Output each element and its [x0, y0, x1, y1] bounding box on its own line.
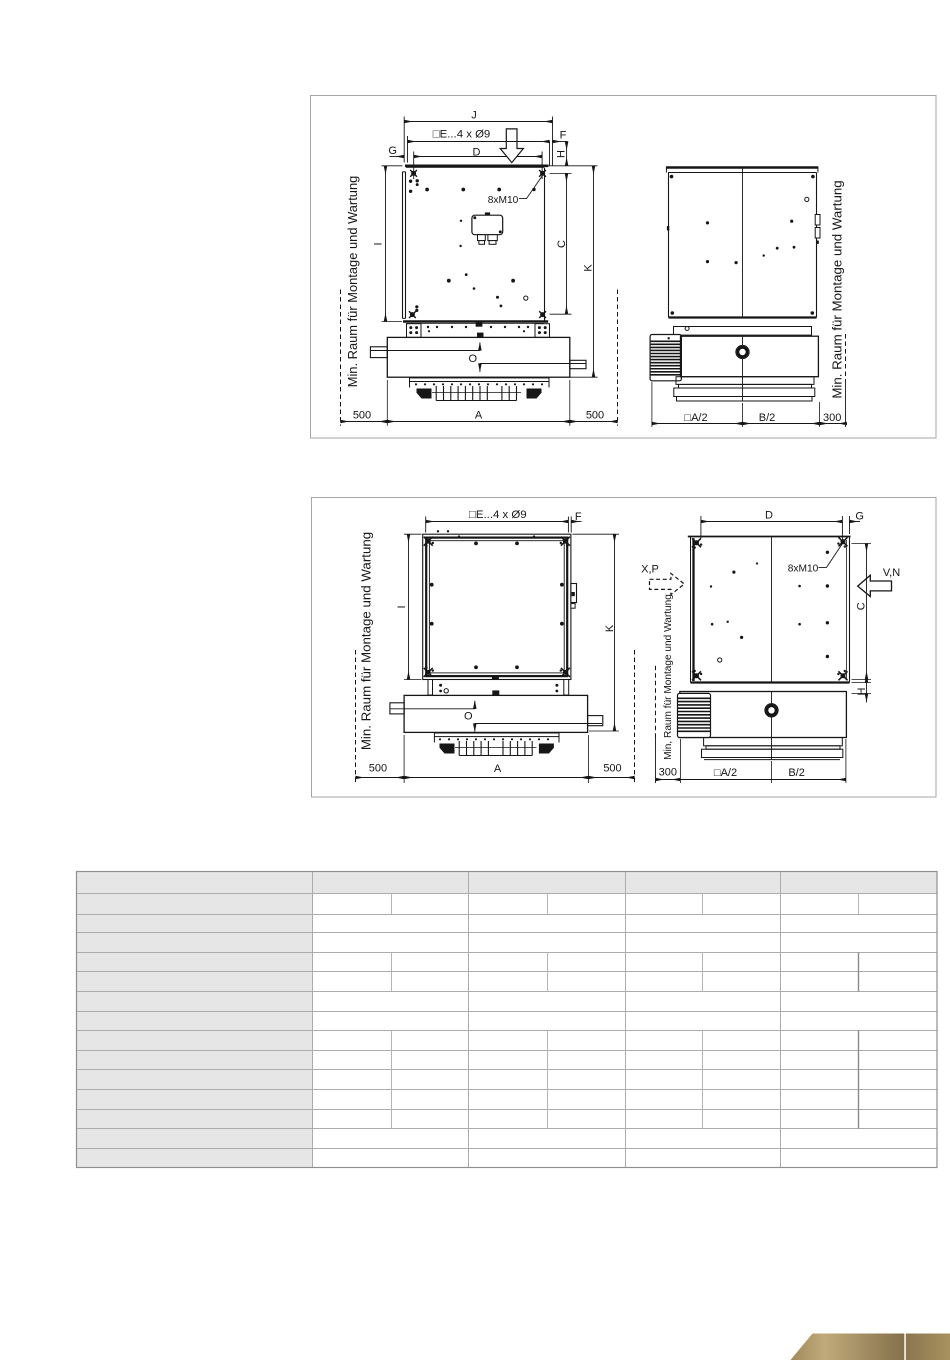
svg-text:300: 300	[659, 767, 677, 779]
svg-text:V,N: V,N	[883, 567, 900, 579]
svg-text:500: 500	[353, 409, 371, 421]
svg-text:F: F	[575, 511, 582, 523]
svg-text:H: H	[556, 150, 568, 158]
svg-text:G: G	[855, 511, 864, 523]
svg-text:□E...4 x Ø9: □E...4 x Ø9	[469, 509, 527, 521]
svg-text:A: A	[475, 409, 483, 421]
svg-text:D: D	[765, 509, 773, 521]
svg-text:D: D	[473, 147, 481, 159]
svg-text:C: C	[856, 602, 868, 610]
svg-text:B/2: B/2	[759, 412, 776, 424]
svg-text:Min. Raum für Montage und Wart: Min. Raum für Montage und Wartung	[830, 180, 845, 398]
svg-text:J: J	[471, 110, 477, 122]
svg-text:K: K	[583, 264, 595, 272]
svg-text:8xM10: 8xM10	[488, 195, 519, 206]
svg-text:G: G	[388, 145, 397, 157]
svg-text:Min. Raum für Montage und Wart: Min. Raum für Montage und Wartung	[345, 176, 360, 388]
svg-text:□A/2: □A/2	[684, 412, 707, 424]
svg-text:I: I	[373, 242, 385, 245]
svg-text:500: 500	[586, 409, 604, 421]
svg-text:Min, Raum für Montage und Wart: Min, Raum für Montage und Wartung	[663, 594, 674, 760]
svg-text:B/2: B/2	[788, 767, 805, 779]
svg-text:Min. Raum für Montage und Wart: Min. Raum für Montage und Wartung	[359, 532, 374, 750]
svg-text:□E...4 x Ø9: □E...4 x Ø9	[433, 128, 491, 140]
svg-text:□A/2: □A/2	[714, 767, 737, 779]
svg-text:O: O	[469, 353, 478, 365]
svg-text:8xM10: 8xM10	[788, 563, 819, 574]
svg-text:X,P: X,P	[641, 564, 659, 576]
svg-text:O: O	[464, 711, 473, 723]
svg-text:F: F	[560, 130, 567, 142]
svg-text:500: 500	[369, 763, 387, 775]
svg-text:C: C	[556, 240, 568, 248]
svg-text:H: H	[856, 687, 868, 695]
svg-text:I: I	[396, 605, 408, 608]
svg-text:A: A	[494, 763, 502, 775]
svg-text:500: 500	[603, 763, 621, 775]
svg-text:K: K	[604, 624, 616, 632]
svg-text:300: 300	[823, 412, 841, 424]
